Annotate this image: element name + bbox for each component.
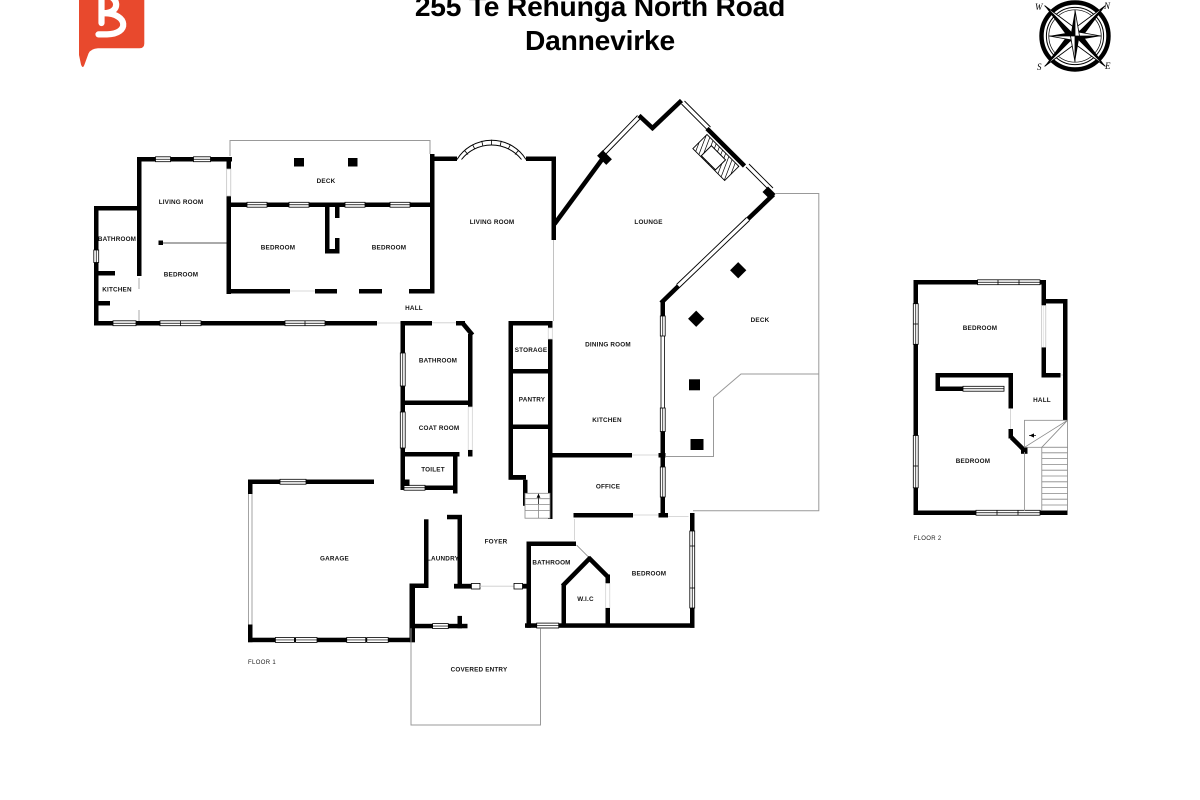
svg-text:LIVING ROOM: LIVING ROOM xyxy=(470,219,515,226)
svg-text:GARAGE: GARAGE xyxy=(320,556,349,563)
svg-text:FLOOR 1: FLOOR 1 xyxy=(248,660,276,666)
svg-text:LOUNGE: LOUNGE xyxy=(634,219,662,226)
svg-text:N: N xyxy=(1103,1,1111,11)
svg-text:OFFICE: OFFICE xyxy=(596,484,620,491)
svg-text:HALL: HALL xyxy=(1033,397,1051,404)
svg-text:FLOOR 2: FLOOR 2 xyxy=(914,536,942,542)
svg-text:COVERED ENTRY: COVERED ENTRY xyxy=(451,667,508,674)
svg-text:PANTRY: PANTRY xyxy=(519,397,546,404)
svg-text:LIVING ROOM: LIVING ROOM xyxy=(159,199,204,206)
svg-text:HALL: HALL xyxy=(405,305,423,312)
svg-text:E: E xyxy=(1104,61,1111,71)
svg-text:255 Te Rehunga North Road: 255 Te Rehunga North Road xyxy=(415,0,785,22)
svg-text:BEDROOM: BEDROOM xyxy=(963,325,997,332)
svg-text:W.I.C: W.I.C xyxy=(577,596,594,603)
svg-text:TOILET: TOILET xyxy=(421,467,445,474)
svg-text:KITCHEN: KITCHEN xyxy=(102,287,132,294)
svg-text:DECK: DECK xyxy=(317,178,336,185)
svg-text:LAUNDRY: LAUNDRY xyxy=(427,556,460,563)
svg-text:FOYER: FOYER xyxy=(485,539,508,546)
svg-text:BEDROOM: BEDROOM xyxy=(632,571,666,578)
svg-text:DECK: DECK xyxy=(751,317,770,324)
svg-text:BEDROOM: BEDROOM xyxy=(164,272,198,279)
svg-text:S: S xyxy=(1037,62,1042,72)
svg-text:KITCHEN: KITCHEN xyxy=(592,417,622,424)
svg-text:BATHROOM: BATHROOM xyxy=(98,236,136,243)
svg-text:BATHROOM: BATHROOM xyxy=(532,560,570,567)
svg-text:Dannevirke: Dannevirke xyxy=(525,24,675,56)
svg-text:STORAGE: STORAGE xyxy=(515,347,548,354)
svg-text:BATHROOM: BATHROOM xyxy=(419,358,457,365)
svg-text:BEDROOM: BEDROOM xyxy=(372,245,406,252)
svg-text:BEDROOM: BEDROOM xyxy=(956,458,990,465)
svg-text:BEDROOM: BEDROOM xyxy=(261,245,295,252)
svg-text:DINING ROOM: DINING ROOM xyxy=(585,342,631,349)
svg-text:COAT ROOM: COAT ROOM xyxy=(419,425,460,432)
